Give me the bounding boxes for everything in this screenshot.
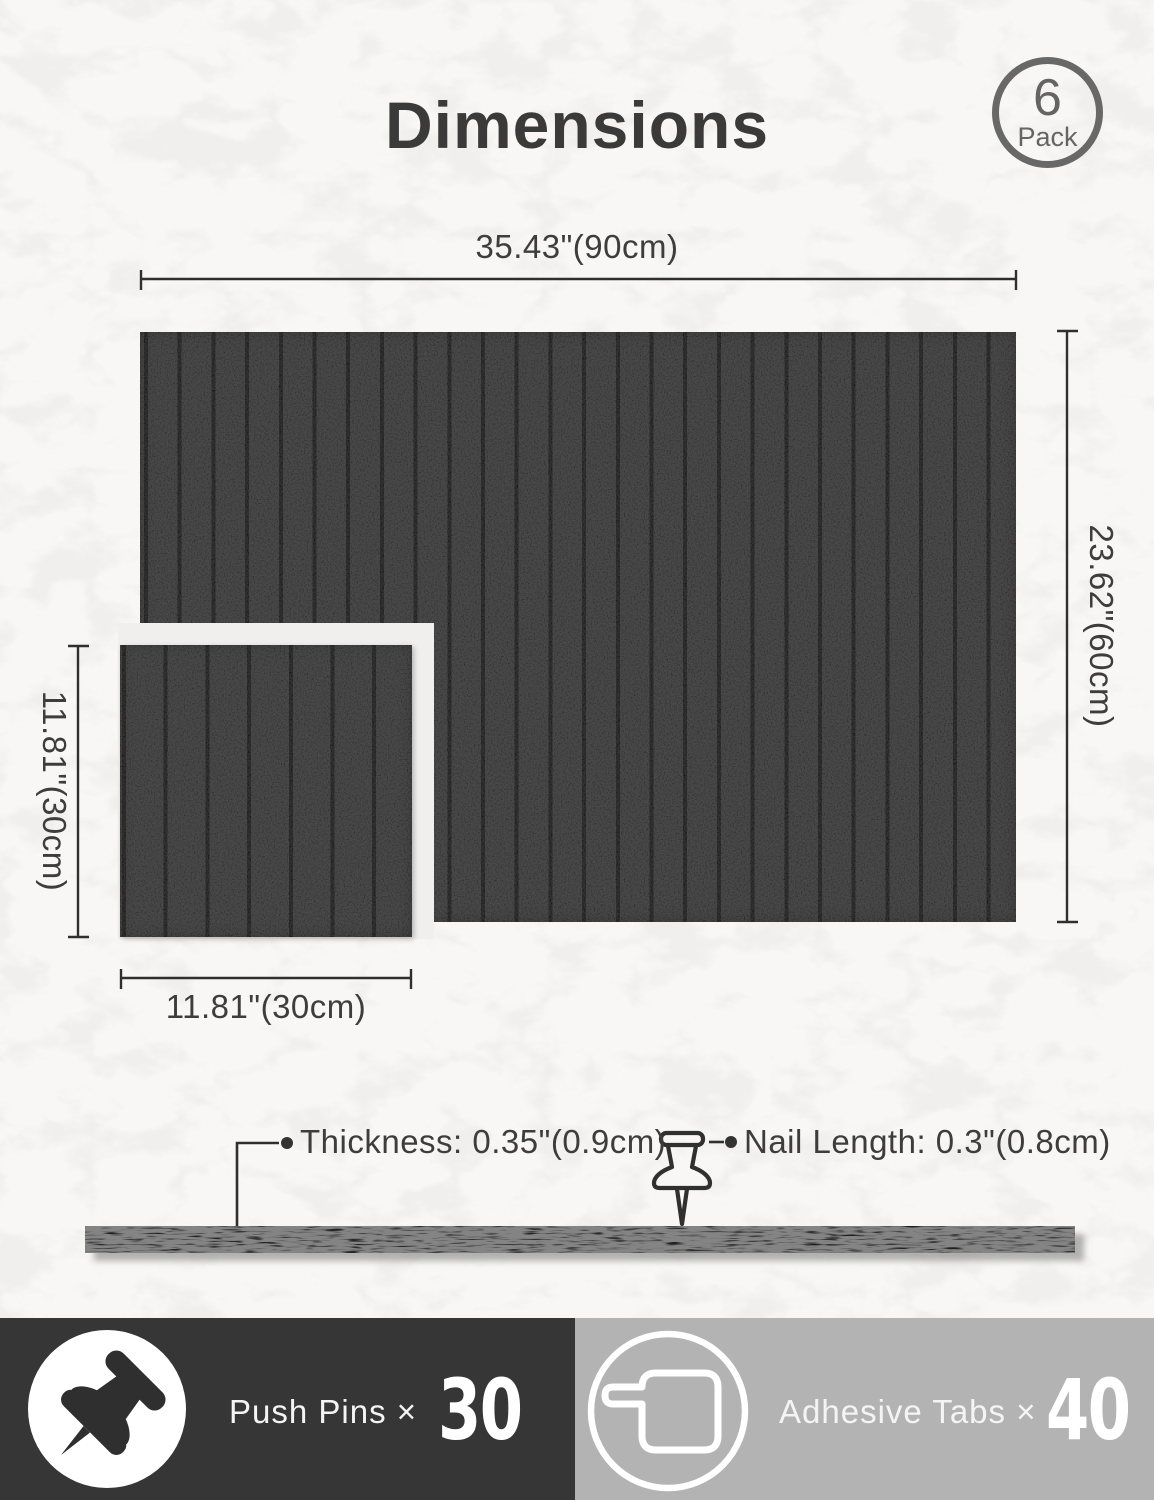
thickness-callout-text: Thickness: 0.35"(0.9cm) [300,1123,666,1161]
small-height-dim-label: 11.81"(30cm) [35,691,73,892]
small-panel-grooves [120,645,412,937]
nail-length-callout-text: Nail Length: 0.3"(0.8cm) [744,1123,1111,1161]
small-width-dim-label: 11.81"(30cm) [166,988,367,1026]
adhesive-tabs-count: 40 [1046,1361,1130,1459]
large-height-dim-label: 23.62"(60cm) [1082,525,1120,728]
pack-badge: 6 Pack [992,57,1103,168]
nail-leader-dot [725,1136,737,1148]
adhesive-tabs-label: Adhesive Tabs × [779,1393,1036,1431]
large-width-dim-label: 35.43"(90cm) [476,228,679,266]
page-title: Dimensions [385,87,769,163]
thickness-side-bar [85,1226,1075,1253]
small-felt-panel [120,645,412,937]
pack-badge-count: 6 [1033,74,1062,123]
push-pins-label: Push Pins × [229,1393,417,1431]
thickness-leader-line [237,1143,279,1226]
thickness-leader-dot [281,1137,293,1149]
thickness-bar-felt-grain [85,1226,1075,1253]
dimensions-infographic: Dimensions 6 Pack 35.43"(90cm) 23.62"(60… [0,0,1154,1500]
pack-badge-unit: Pack [1017,124,1077,151]
push-pins-count: 30 [438,1361,522,1459]
